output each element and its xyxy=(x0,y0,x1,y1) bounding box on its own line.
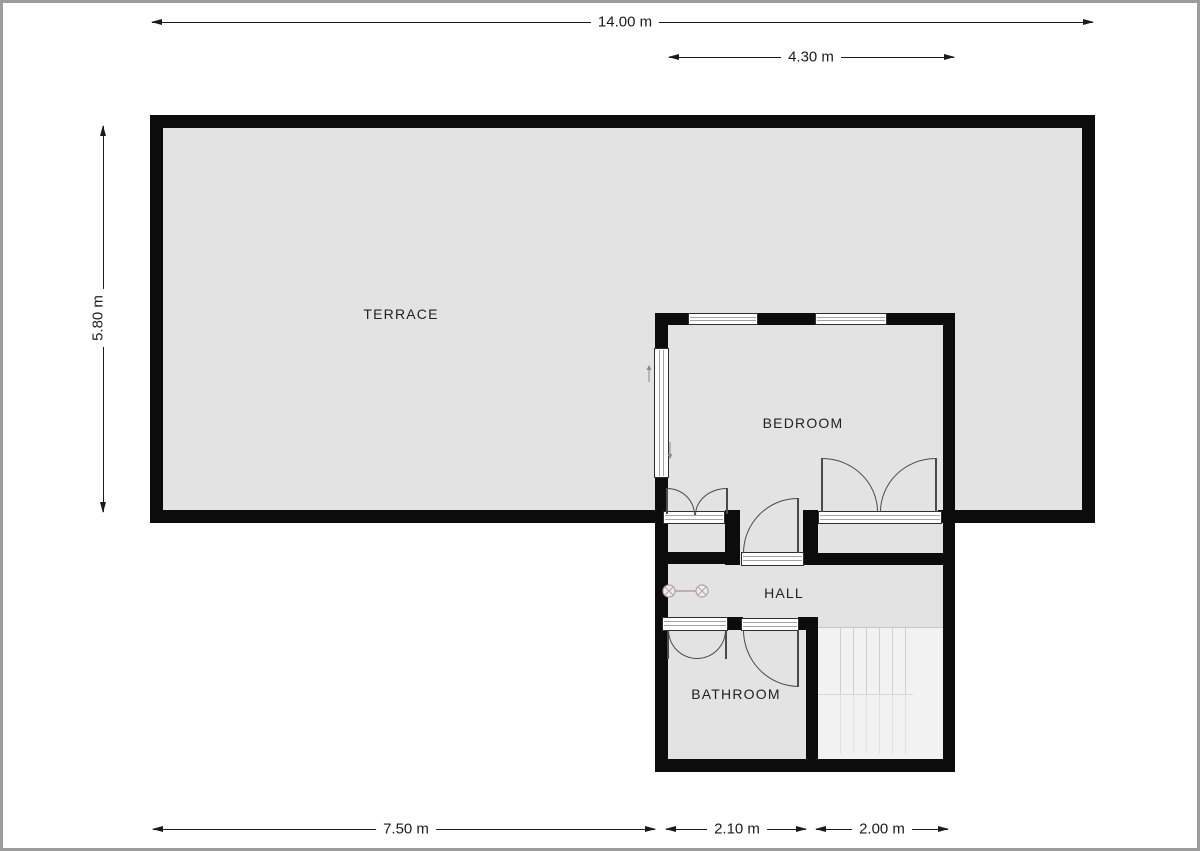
wall-bathroom-right xyxy=(806,617,818,759)
dimension-label: 14.00 m xyxy=(591,14,659,31)
room-label-bedroom: BEDROOM xyxy=(763,415,844,431)
dimension-stairs-width: 2.00 m xyxy=(816,829,948,830)
dimension-label: 5.80 m xyxy=(90,289,107,347)
arrow-left-icon xyxy=(668,54,679,60)
door-panel-closet-left xyxy=(666,488,668,514)
stair-landing-edge xyxy=(818,694,913,695)
stair-treads-upper xyxy=(828,628,912,694)
wall-bottom xyxy=(655,759,955,772)
dimension-overall-width: 14.00 m xyxy=(152,22,1093,23)
arrow-up-icon xyxy=(100,125,106,136)
arrow-right-icon xyxy=(938,826,949,832)
arrow-down-icon xyxy=(100,502,106,513)
wall-terrace-top xyxy=(150,115,1095,128)
stair-treads-lower xyxy=(828,694,912,754)
room-label-hall: HALL xyxy=(764,585,804,601)
room-label-terrace: TERRACE xyxy=(363,306,438,322)
dimension-label: 2.00 m xyxy=(852,821,912,838)
floorplan-canvas: TERRACE BEDROOM HALL BATHROOM 14.00 m 4.… xyxy=(0,0,1200,851)
door-panel-closet-right xyxy=(726,488,728,514)
arrow-left-icon xyxy=(151,19,162,25)
wall-bedroom-right xyxy=(943,313,955,759)
threshold-bathroom-double-door xyxy=(662,617,728,631)
towel-rail-icon xyxy=(660,580,712,602)
dimension-label: 2.10 m xyxy=(707,821,767,838)
slide-direction-arrow-icon xyxy=(644,364,654,384)
dimension-bedroom-width: 4.30 m xyxy=(669,57,954,58)
door-panel-bedroom-hall xyxy=(797,498,799,553)
arrow-left-icon xyxy=(815,826,826,832)
dimension-terrace-width: 7.50 m xyxy=(153,829,655,830)
threshold-bedroom-double-door xyxy=(818,511,942,524)
arrow-left-icon xyxy=(152,826,163,832)
window-bedroom-2 xyxy=(815,313,887,325)
threshold-bedroom-hall-door xyxy=(741,552,804,566)
door-panel-bathroom-double-right xyxy=(725,631,727,659)
wall-terrace-bottom-left xyxy=(150,510,663,523)
staircase xyxy=(818,627,943,759)
arrow-right-icon xyxy=(645,826,656,832)
dimension-hall-width: 2.10 m xyxy=(666,829,806,830)
door-panel-bathroom xyxy=(797,630,799,687)
arrow-right-icon xyxy=(796,826,807,832)
dimension-label: 7.50 m xyxy=(376,821,436,838)
wall-hall-niche xyxy=(655,552,740,564)
wall-hall-top-right xyxy=(803,553,943,565)
arrow-left-icon xyxy=(665,826,676,832)
arrow-right-icon xyxy=(1083,19,1094,25)
door-panel-bathroom-double-left xyxy=(667,631,669,659)
door-panel-bedroom-double-left xyxy=(821,458,823,512)
door-panel-bedroom-double-right xyxy=(935,458,937,512)
wall-terrace-left xyxy=(150,115,163,523)
dimension-overall-depth: 5.80 m xyxy=(103,126,104,512)
room-label-bathroom: BATHROOM xyxy=(691,686,780,702)
wall-terrace-bottom-right xyxy=(938,510,1095,523)
wall-bedroom-top-b xyxy=(758,313,815,325)
wall-terrace-right xyxy=(1082,115,1095,523)
slide-direction-arrow-icon xyxy=(665,440,675,460)
window-bedroom-1 xyxy=(688,313,758,325)
arrow-right-icon xyxy=(944,54,955,60)
dimension-label: 4.30 m xyxy=(781,49,841,66)
